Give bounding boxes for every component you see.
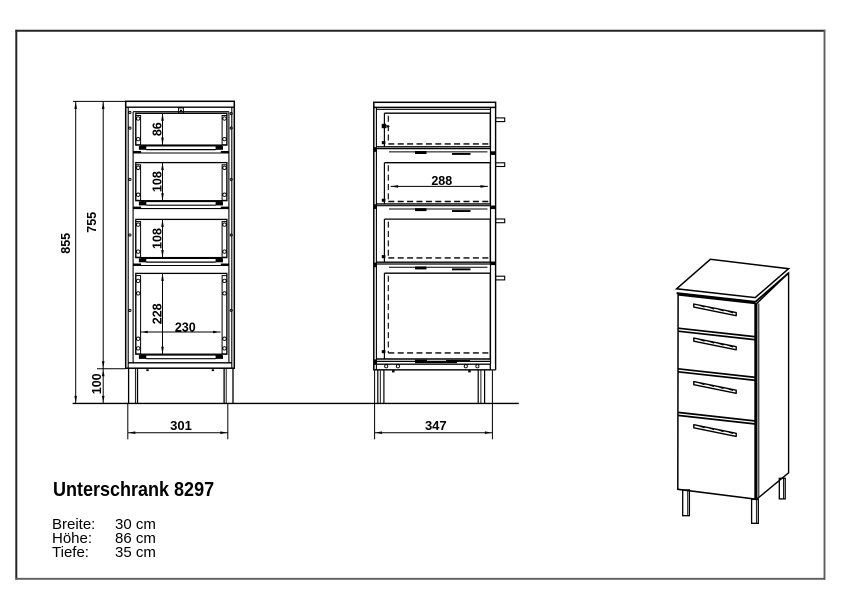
svg-text:108: 108 bbox=[150, 171, 164, 192]
svg-text:755: 755 bbox=[85, 212, 99, 233]
svg-text:347: 347 bbox=[425, 418, 447, 433]
svg-text:855: 855 bbox=[59, 233, 73, 254]
svg-text:100: 100 bbox=[90, 373, 104, 394]
svg-text:301: 301 bbox=[170, 418, 192, 433]
svg-text:86: 86 bbox=[150, 122, 164, 136]
svg-text:288: 288 bbox=[431, 174, 452, 188]
svg-text:230: 230 bbox=[175, 321, 196, 335]
svg-text:228: 228 bbox=[150, 303, 164, 324]
svg-text:108: 108 bbox=[150, 228, 164, 249]
